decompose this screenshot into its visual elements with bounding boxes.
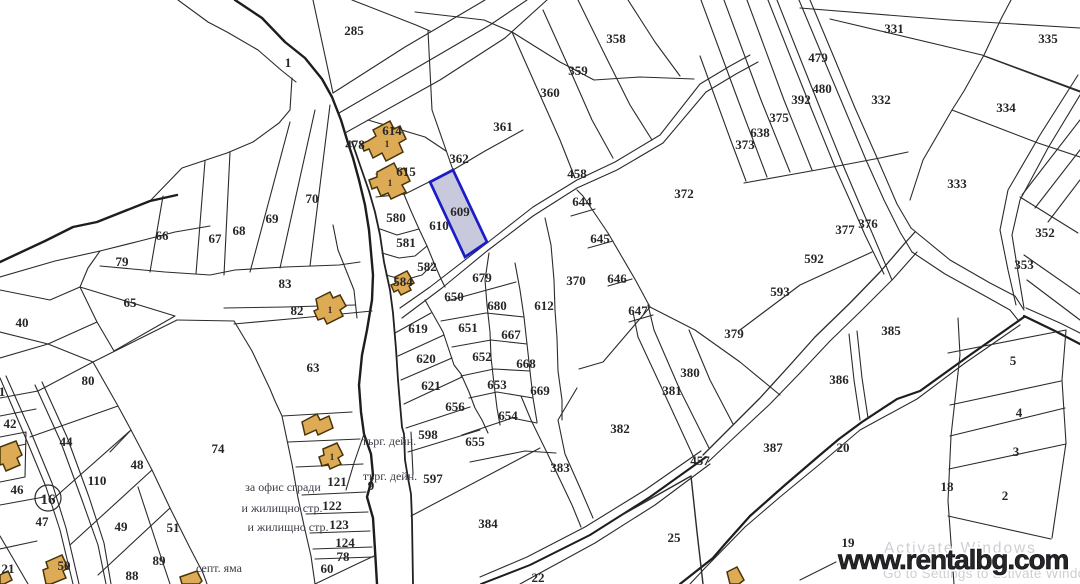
svg-text:44: 44 <box>60 434 74 449</box>
svg-text:5: 5 <box>1010 353 1017 368</box>
svg-text:615: 615 <box>396 164 416 179</box>
svg-text:21: 21 <box>2 561 15 576</box>
svg-text:22: 22 <box>532 570 545 584</box>
svg-text:656: 656 <box>445 399 465 414</box>
svg-text:69: 69 <box>266 211 280 226</box>
svg-text:478: 478 <box>345 137 365 152</box>
svg-text:65: 65 <box>124 295 138 310</box>
svg-text:332: 332 <box>871 92 891 107</box>
svg-text:335: 335 <box>1038 31 1058 46</box>
svg-text:352: 352 <box>1035 225 1055 240</box>
svg-text:598: 598 <box>418 427 438 442</box>
svg-text:651: 651 <box>458 320 478 335</box>
svg-text:www.rentalbg.com: www.rentalbg.com <box>837 544 1068 575</box>
svg-text:79: 79 <box>116 254 130 269</box>
svg-text:386: 386 <box>829 372 849 387</box>
svg-text:379: 379 <box>724 326 744 341</box>
svg-text:25: 25 <box>668 530 682 545</box>
svg-text:18: 18 <box>941 479 955 494</box>
svg-text:68: 68 <box>233 223 247 238</box>
svg-text:680: 680 <box>487 298 507 313</box>
svg-text:66: 66 <box>156 228 170 243</box>
svg-text:387: 387 <box>763 440 783 455</box>
svg-text:42: 42 <box>4 416 17 431</box>
svg-text:септ. яма: септ. яма <box>196 561 243 575</box>
svg-text:679: 679 <box>472 270 492 285</box>
svg-text:50: 50 <box>58 558 71 573</box>
svg-text:121: 121 <box>327 474 347 489</box>
svg-text:372: 372 <box>674 186 694 201</box>
svg-text:74: 74 <box>212 441 226 456</box>
svg-text:1: 1 <box>285 55 292 70</box>
svg-text:610: 610 <box>429 218 449 233</box>
svg-text:653: 653 <box>487 377 507 392</box>
svg-text:646: 646 <box>607 271 627 286</box>
svg-text:580: 580 <box>386 210 406 225</box>
svg-text:80: 80 <box>82 373 95 388</box>
svg-text:592: 592 <box>804 251 824 266</box>
svg-text:285: 285 <box>344 23 364 38</box>
svg-text:1: 1 <box>388 178 393 188</box>
svg-text:621: 621 <box>421 378 441 393</box>
svg-text:650: 650 <box>444 289 464 304</box>
svg-text:353: 353 <box>1014 257 1034 272</box>
svg-text:40: 40 <box>16 315 29 330</box>
svg-text:63: 63 <box>307 360 321 375</box>
svg-text:375: 375 <box>769 110 789 125</box>
svg-text:60: 60 <box>321 561 334 576</box>
svg-text:638: 638 <box>750 125 770 140</box>
svg-text:609: 609 <box>450 204 470 219</box>
svg-text:392: 392 <box>791 92 811 107</box>
svg-text:582: 582 <box>417 259 437 274</box>
svg-text:654: 654 <box>498 408 518 423</box>
svg-text:88: 88 <box>126 568 140 583</box>
svg-text:търг. дейн.: търг. дейн. <box>363 469 417 483</box>
svg-text:668: 668 <box>516 356 536 371</box>
svg-text:333: 333 <box>947 176 967 191</box>
svg-text:3: 3 <box>1013 444 1020 459</box>
svg-text:и жилищно стр.: и жилищно стр. <box>242 501 323 515</box>
svg-text:380: 380 <box>680 365 700 380</box>
svg-text:644: 644 <box>572 194 592 209</box>
svg-text:16: 16 <box>41 492 57 508</box>
svg-text:4: 4 <box>1016 405 1023 420</box>
svg-text:1: 1 <box>330 452 335 462</box>
svg-text:48: 48 <box>131 457 145 472</box>
svg-text:търг. дейн.: търг. дейн. <box>362 434 416 448</box>
svg-text:122: 122 <box>322 498 342 513</box>
svg-text:82: 82 <box>291 303 304 318</box>
svg-text:458: 458 <box>567 166 587 181</box>
svg-text:584: 584 <box>393 274 413 289</box>
svg-text:652: 652 <box>472 349 492 364</box>
svg-text:47: 47 <box>36 514 50 529</box>
svg-text:457: 457 <box>690 453 710 468</box>
svg-text:597: 597 <box>423 471 443 486</box>
svg-text:83: 83 <box>279 276 293 291</box>
svg-text:612: 612 <box>534 298 554 313</box>
svg-text:20: 20 <box>837 440 850 455</box>
svg-text:110: 110 <box>88 473 107 488</box>
svg-text:645: 645 <box>590 231 610 246</box>
svg-text:669: 669 <box>530 383 550 398</box>
svg-text:70: 70 <box>306 191 319 206</box>
svg-text:51: 51 <box>167 520 180 535</box>
svg-text:334: 334 <box>996 100 1016 115</box>
svg-text:647: 647 <box>628 303 648 318</box>
svg-text:2: 2 <box>1002 488 1009 503</box>
svg-text:362: 362 <box>449 151 469 166</box>
svg-text:1: 1 <box>328 305 333 315</box>
svg-text:376: 376 <box>858 216 878 231</box>
svg-text:1: 1 <box>385 139 390 149</box>
svg-text:124: 124 <box>335 535 355 550</box>
svg-text:377: 377 <box>835 222 855 237</box>
svg-text:358: 358 <box>606 31 626 46</box>
svg-text:78: 78 <box>337 549 351 564</box>
svg-text:382: 382 <box>610 421 630 436</box>
svg-text:и жилищно стр.: и жилищно стр. <box>248 520 329 534</box>
svg-text:480: 480 <box>812 81 832 96</box>
svg-text:581: 581 <box>396 235 416 250</box>
svg-text:381: 381 <box>662 383 682 398</box>
svg-text:360: 360 <box>540 85 560 100</box>
svg-text:383: 383 <box>550 460 570 475</box>
svg-text:614: 614 <box>382 123 402 138</box>
svg-text:385: 385 <box>881 323 901 338</box>
svg-text:667: 667 <box>501 327 521 342</box>
svg-text:361: 361 <box>493 119 513 134</box>
svg-text:619: 619 <box>408 321 428 336</box>
svg-text:655: 655 <box>465 434 485 449</box>
svg-text:67: 67 <box>209 231 223 246</box>
svg-text:620: 620 <box>416 351 436 366</box>
svg-text:за офис сгради: за офис сгради <box>245 480 321 494</box>
svg-text:593: 593 <box>770 284 790 299</box>
svg-text:49: 49 <box>115 519 129 534</box>
svg-text:89: 89 <box>153 553 167 568</box>
svg-text:331: 331 <box>884 21 904 36</box>
svg-text:123: 123 <box>329 517 349 532</box>
svg-text:46: 46 <box>11 482 25 497</box>
svg-text:359: 359 <box>568 63 588 78</box>
svg-text:370: 370 <box>566 273 586 288</box>
svg-text:384: 384 <box>478 516 498 531</box>
svg-text:479: 479 <box>808 50 828 65</box>
svg-text:1: 1 <box>0 384 5 399</box>
